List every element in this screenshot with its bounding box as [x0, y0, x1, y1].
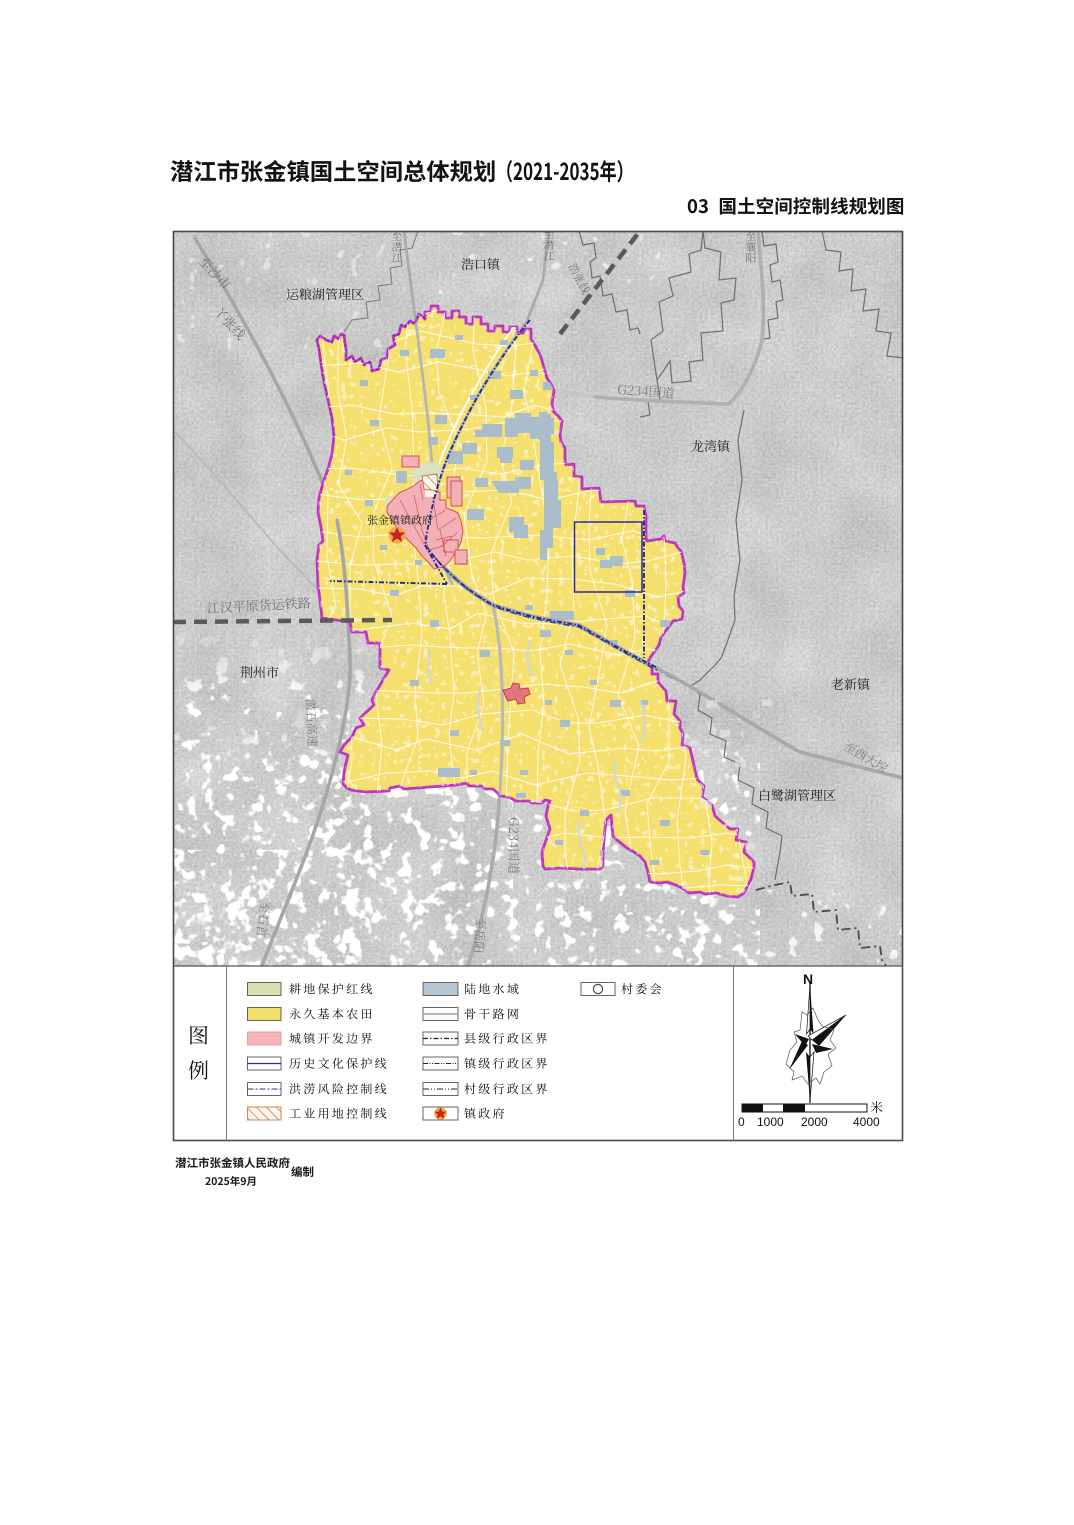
svg-text:0: 0 [738, 1115, 745, 1129]
svg-text:N: N [803, 971, 813, 987]
svg-text:1000: 1000 [757, 1115, 784, 1129]
svg-text:2000: 2000 [801, 1115, 828, 1129]
svg-text:4000: 4000 [853, 1115, 880, 1129]
